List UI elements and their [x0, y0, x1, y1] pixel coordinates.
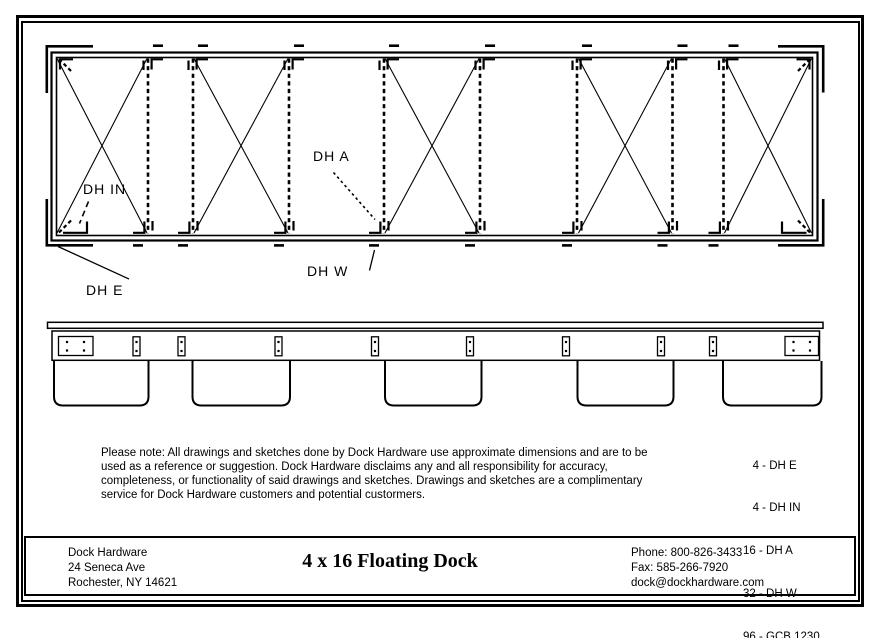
angle-bracket-dh-a	[581, 59, 592, 69]
company-address: 24 Seneca Ave	[68, 561, 177, 576]
disclaimer-line: used as a reference or suggestion. Dock …	[101, 460, 648, 474]
bolt-dot	[565, 350, 567, 352]
divider-plate	[658, 337, 665, 356]
bolt-dot	[374, 350, 376, 352]
label-dh-e: DH E	[86, 282, 123, 298]
divider-plate	[467, 337, 474, 356]
angle-bracket-dh-a	[709, 222, 720, 233]
bolt-dot	[277, 350, 279, 352]
angle-bracket-dh-a	[465, 222, 476, 233]
bolt-dot	[712, 350, 714, 352]
divider-plate	[710, 337, 717, 356]
dock-side-view	[48, 322, 824, 405]
bolt-dot	[565, 341, 567, 343]
divider-plate	[563, 337, 570, 356]
angle-bracket-dh-a	[676, 59, 687, 69]
drawing-sheet: DH IN DH A DH W DH E Please note: All dr…	[0, 0, 877, 638]
bolt-dot	[135, 350, 137, 352]
deck-top-edge	[48, 322, 824, 328]
divider-plate	[275, 337, 282, 356]
bolt-dot	[66, 341, 68, 343]
company-info: Dock Hardware 24 Seneca Ave Rochester, N…	[68, 546, 177, 591]
angle-bracket-dh-a	[133, 222, 144, 233]
bolt-dot	[469, 341, 471, 343]
company-name: Dock Hardware	[68, 546, 177, 561]
bolt-dot	[277, 341, 279, 343]
parts-list-item: 4 - DH E	[743, 459, 842, 473]
sheet-title: 4 x 16 Floating Dock	[302, 550, 478, 573]
bolt-dot	[66, 349, 68, 351]
side-frame-band	[52, 331, 820, 360]
angle-bracket-dh-a	[197, 59, 208, 69]
bolt-dot	[180, 341, 182, 343]
bolt-dot	[792, 349, 794, 351]
disclaimer-line: completeness, or functionality of said d…	[101, 474, 648, 488]
angle-bracket-dh-a	[178, 222, 189, 233]
divider-plate	[133, 337, 140, 356]
dh-w-leader	[370, 250, 375, 271]
angle-bracket-dh-a	[152, 59, 163, 69]
dh-e-leader	[58, 247, 129, 280]
parts-list-item: 4 - DH IN	[743, 501, 842, 515]
bolt-dot	[660, 341, 662, 343]
end-plate	[785, 337, 819, 356]
angle-bracket-dh-a	[369, 222, 380, 233]
bolt-dot	[83, 341, 85, 343]
bolt-dot	[660, 350, 662, 352]
dock-float	[54, 361, 149, 406]
bolt-dot	[83, 349, 85, 351]
frame-inner-edge	[57, 58, 813, 236]
divider-plate	[372, 337, 379, 356]
label-dh-in: DH IN	[83, 181, 126, 197]
bolt-dot	[135, 341, 137, 343]
angle-bracket-dh-a	[658, 222, 669, 233]
bolt-dot	[180, 350, 182, 352]
angle-bracket-dh-a	[274, 222, 285, 233]
bolt-dot	[792, 341, 794, 343]
angle-bracket-dh-a	[484, 59, 495, 69]
dh-in-leader	[80, 202, 89, 224]
dock-float	[578, 361, 674, 406]
company-address: Rochester, NY 14621	[68, 576, 177, 591]
dh-a-leader	[334, 173, 376, 220]
dock-float	[723, 361, 822, 406]
angle-bracket-dh-a	[293, 59, 304, 69]
label-dh-w: DH W	[307, 263, 348, 279]
dock-float	[385, 361, 482, 406]
bolt-dot	[712, 341, 714, 343]
dock-float	[193, 361, 291, 406]
angle-bracket-dh-a	[388, 59, 399, 69]
disclaimer-line: Please note: All drawings and sketches d…	[101, 446, 648, 460]
disclaimer-note: Please note: All drawings and sketches d…	[101, 446, 648, 502]
inside-corner-angle	[63, 222, 87, 233]
parts-list-item: 96 - GCB 1230	[743, 630, 842, 638]
label-dh-a: DH A	[313, 148, 350, 164]
bolt-dot	[374, 341, 376, 343]
contact-fax: Fax: 585-266-7920	[631, 561, 764, 576]
contact-info: Phone: 800-826-3433 Fax: 585-266-7920 do…	[631, 546, 764, 591]
divider-plate	[178, 337, 185, 356]
bolt-dot	[809, 349, 811, 351]
bolt-dot	[809, 341, 811, 343]
contact-phone: Phone: 800-826-3433	[631, 546, 764, 561]
contact-email: dock@dockhardware.com	[631, 576, 764, 591]
dock-plan-view	[47, 46, 823, 246]
bolt-dot	[469, 350, 471, 352]
inside-corner-angle	[782, 222, 807, 233]
disclaimer-line: service for Dock Hardware customers and …	[101, 488, 648, 502]
parts-list: 4 - DH E 4 - DH IN 16 - DH A 32 - DH W 9…	[743, 430, 842, 638]
frame-outer-edge	[52, 53, 818, 241]
end-plate	[59, 337, 94, 356]
angle-bracket-dh-a	[562, 222, 573, 233]
